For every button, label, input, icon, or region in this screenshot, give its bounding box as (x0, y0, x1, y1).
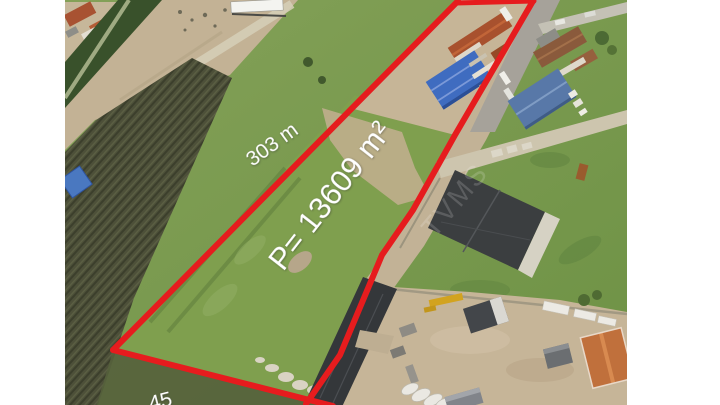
tree (607, 45, 617, 55)
left-margin (0, 0, 65, 405)
tree (578, 294, 590, 306)
tree (592, 290, 602, 300)
screenshot-root: TVMS (0, 0, 720, 405)
aerial-photo: TVMS (0, 0, 720, 405)
tree (595, 31, 609, 45)
right-margin (627, 0, 720, 405)
boundary-top (456, 1, 534, 3)
